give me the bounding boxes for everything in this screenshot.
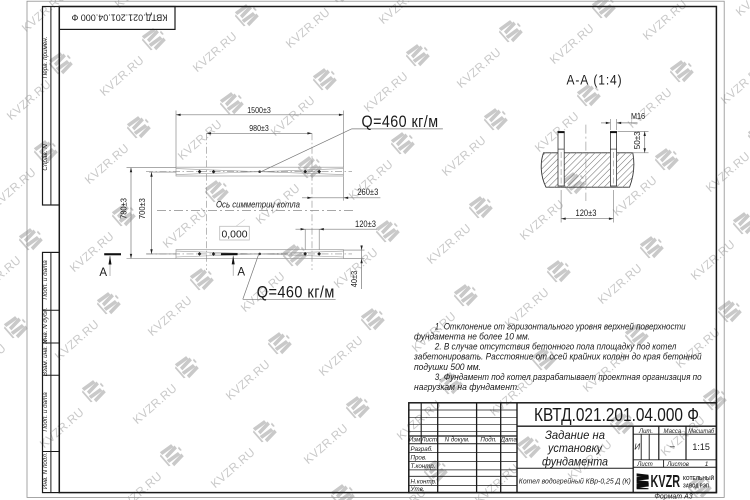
svg-text:забетонировать. Расстояние от: забетонировать. Расстояние от осей крайн…	[413, 352, 702, 362]
svg-text:120±3: 120±3	[576, 208, 597, 218]
svg-text:Лит.: Лит.	[638, 429, 653, 435]
svg-text:120±3: 120±3	[355, 219, 376, 229]
svg-text:KVZR: KVZR	[651, 471, 681, 491]
svg-text:0,000: 0,000	[222, 229, 248, 240]
svg-text:Масштаб: Масштаб	[688, 429, 715, 435]
svg-text:Котел водогрейный КВр-0,25 Д (: Котел водогрейный КВр-0,25 Д (К)	[519, 477, 631, 486]
svg-text:Лист: Лист	[636, 462, 652, 468]
svg-text:Q=460 кг/м: Q=460 кг/м	[362, 113, 439, 131]
svg-text:И: И	[634, 443, 640, 452]
svg-text:Инв. N подл.: Инв. N подл.	[41, 452, 49, 489]
svg-text:780±3: 780±3	[118, 198, 128, 219]
svg-text:2. В случае отсутствия бетонно: 2. В случае отсутствия бетонного пола пл…	[434, 342, 676, 352]
svg-text:–: –	[670, 441, 675, 451]
svg-text:1. Отклонение от горизонтально: 1. Отклонение от горизонтального уровня …	[435, 321, 686, 331]
svg-text:А: А	[237, 267, 245, 279]
svg-text:Разраб.: Разраб.	[411, 446, 433, 453]
svg-text:40±3: 40±3	[349, 271, 359, 288]
svg-text:нагрузкам на фундамент.: нагрузкам на фундамент.	[414, 382, 519, 392]
svg-text:Лист: Лист	[420, 437, 437, 444]
svg-text:260±3: 260±3	[357, 187, 378, 197]
svg-text:установку: установку	[547, 441, 603, 455]
svg-text:Изм: Изм	[409, 437, 421, 444]
svg-text:Формат А3: Формат А3	[654, 494, 692, 500]
svg-text:КВТД.021.201.04.000 Ф: КВТД.021.201.04.000 Ф	[71, 13, 167, 23]
svg-text:КВТД.021.201.04.000 Ф: КВТД.021.201.04.000 Ф	[534, 405, 699, 425]
svg-text:Инв. N дубл.: Инв. N дубл.	[41, 307, 49, 343]
svg-text:Утв.: Утв.	[410, 486, 425, 493]
svg-text:Взам. инв. N: Взам. инв. N	[42, 339, 49, 376]
svg-text:Задание на: Задание на	[545, 428, 605, 442]
svg-text:М16: М16	[631, 112, 645, 121]
svg-text:1: 1	[705, 461, 709, 468]
svg-text:Листов: Листов	[666, 462, 689, 468]
svg-text:Q=460 кг/м: Q=460 кг/м	[257, 283, 335, 301]
svg-text:фундамента: фундамента	[542, 455, 608, 469]
svg-text:Дата: Дата	[500, 437, 518, 444]
svg-text:1:15: 1:15	[692, 442, 710, 452]
svg-text:А-А (1:4): А-А (1:4)	[567, 73, 623, 88]
svg-text:1500±3: 1500±3	[247, 105, 271, 115]
svg-text:700±3: 700±3	[137, 198, 147, 219]
svg-text:3. Фундамент под котел разраба: 3. Фундамент под котел разрабатывает про…	[435, 372, 702, 382]
svg-text:подушки 500 мм.: подушки 500 мм.	[414, 362, 481, 372]
svg-text:Справ. N: Справ. N	[42, 144, 49, 171]
svg-text:Т.контр.: Т.контр.	[411, 463, 436, 470]
svg-text:Н.контр.: Н.контр.	[411, 479, 437, 486]
svg-text:фундамента не более 10 мм.: фундамента не более 10 мм.	[414, 332, 530, 342]
svg-text:Масса: Масса	[664, 429, 682, 435]
svg-text:Подп. и дата: Подп. и дата	[41, 260, 49, 300]
svg-text:50±3: 50±3	[632, 131, 642, 149]
svg-text:Ось симметрии котла: Ось симметрии котла	[216, 199, 300, 210]
svg-text:Подп.: Подп.	[480, 437, 496, 444]
svg-text:N докум.: N докум.	[445, 437, 470, 444]
svg-text:Подп. и дата: Подп. и дата	[41, 392, 49, 432]
svg-text:КОТЕЛЬНЫЙ: КОТЕЛЬНЫЙ	[683, 474, 714, 482]
svg-text:А: А	[99, 267, 107, 279]
svg-text:980±3: 980±3	[249, 123, 269, 133]
svg-text:Перв. примен.: Перв. примен.	[42, 36, 49, 78]
svg-text:ЗАВОД РЭП: ЗАВОД РЭП	[683, 483, 709, 489]
svg-text:Пров.: Пров.	[411, 455, 427, 462]
